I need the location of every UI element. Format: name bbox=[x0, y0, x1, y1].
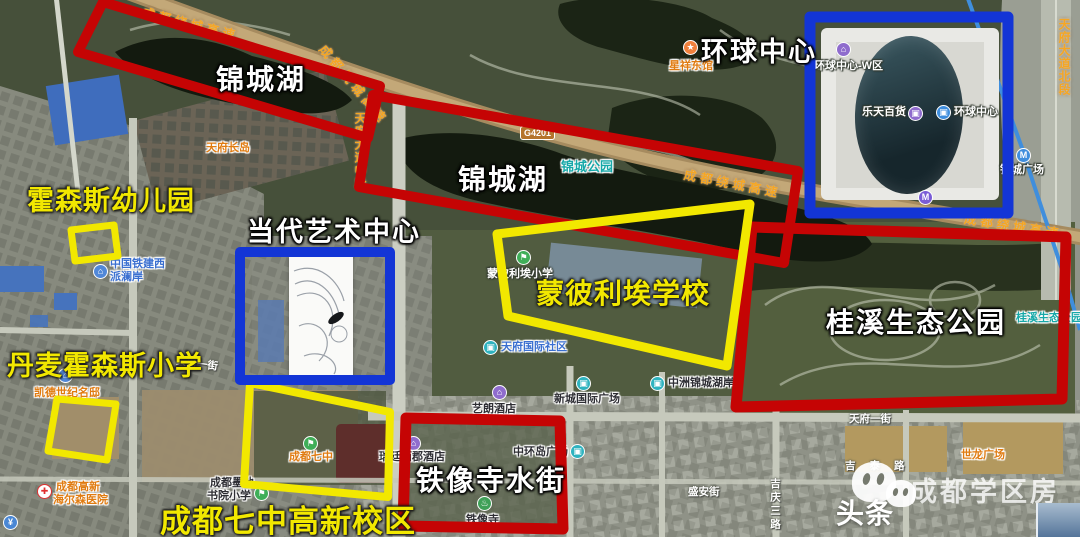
watermark-prefix: 头条 bbox=[836, 498, 894, 529]
annotated-satellite-map: 锦城公园 ★ 星祥东馆 天府长岛 ⌂ 中国铁建西 派澜岸 ⚑ 蒙彼利埃小学 ▣ … bbox=[0, 0, 1080, 537]
label-jincheng-lake-east: 锦城湖 bbox=[458, 158, 548, 198]
label-global-center: 环球中心 bbox=[701, 30, 817, 69]
corner-photo-fragment bbox=[1036, 503, 1080, 537]
label-tiexiangsi-street: 铁像寺水街 bbox=[416, 459, 566, 499]
yellow-box-danmai-primary-site bbox=[48, 399, 116, 460]
label-art-center: 当代艺术中心 bbox=[247, 210, 421, 249]
yellow-box-qizhong-campus bbox=[244, 383, 390, 497]
blue-box-art-center bbox=[240, 252, 390, 380]
label-huosensi-kindergarten: 霍森斯幼儿园 bbox=[27, 179, 195, 218]
yellow-box-kindergarten bbox=[71, 225, 118, 261]
annotation-overlay bbox=[0, 0, 1080, 537]
label-guixi-park: 桂溪生态公园 bbox=[826, 301, 1006, 341]
label-montpellier-school: 蒙彼利埃学校 bbox=[536, 272, 710, 312]
red-box-jincheng-lake-east bbox=[359, 95, 798, 263]
label-jincheng-lake-west: 锦城湖 bbox=[216, 58, 306, 98]
label-qizhong-campus: 成都七中高新校区 bbox=[160, 496, 416, 537]
blue-box-global-center bbox=[810, 17, 1008, 213]
label-danmai-huosensi-primary: 丹麦霍森斯小学 bbox=[7, 344, 203, 383]
